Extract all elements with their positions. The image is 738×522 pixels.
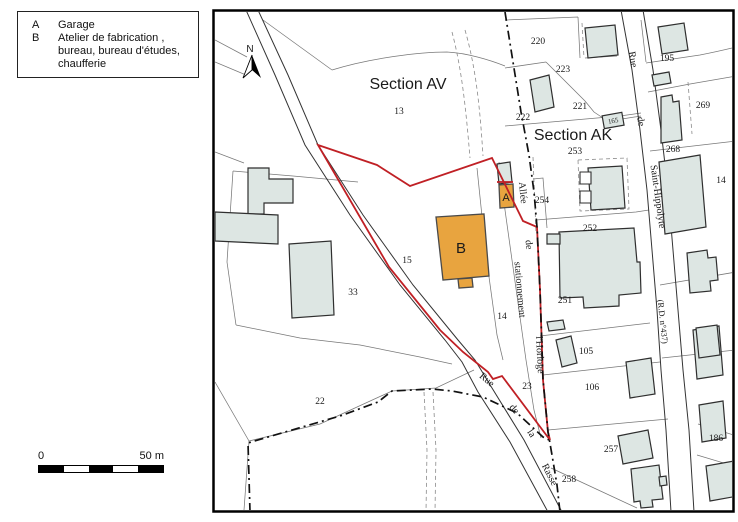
building-parcel-268-tall <box>661 95 682 143</box>
svg-text:106: 106 <box>585 383 600 393</box>
building-parcel-33 <box>289 241 334 318</box>
svg-text:14: 14 <box>497 312 507 322</box>
svg-text:253: 253 <box>568 147 583 157</box>
svg-text:22: 22 <box>315 397 325 407</box>
building-parcel-105 <box>556 336 577 367</box>
svg-text:186: 186 <box>709 434 724 444</box>
svg-text:220: 220 <box>531 37 546 47</box>
svg-text:15: 15 <box>402 256 412 266</box>
svg-text:23: 23 <box>522 382 532 392</box>
svg-text:13: 13 <box>394 107 404 117</box>
building-parcel-253-monument <box>588 166 625 210</box>
building-parcel-220 <box>585 25 618 58</box>
cadastral-map-page: A Garage B Atelier de fabrication , bure… <box>0 0 738 522</box>
section-ak-label: Section AK <box>534 127 613 144</box>
svg-text:la: la <box>524 427 537 440</box>
building-b-label: B <box>456 240 466 257</box>
svg-text:105: 105 <box>579 347 594 357</box>
svg-text:269: 269 <box>696 101 711 111</box>
svg-text:14: 14 <box>716 176 726 186</box>
svg-text:de: de <box>523 239 535 250</box>
svg-text:223: 223 <box>556 65 571 75</box>
svg-text:221: 221 <box>573 102 588 112</box>
building-parcel-223 <box>530 75 554 112</box>
svg-text:268: 268 <box>666 145 681 155</box>
svg-text:254: 254 <box>535 196 550 206</box>
svg-text:195: 195 <box>660 54 675 64</box>
svg-text:N: N <box>246 44 253 55</box>
building-l-shape <box>248 168 293 214</box>
svg-text:Rue: Rue <box>477 371 497 390</box>
building-a-label: A <box>502 192 510 204</box>
svg-text:stationnement: stationnement <box>512 261 528 318</box>
svg-text:Allée: Allée <box>516 181 529 204</box>
svg-text:33: 33 <box>348 288 358 298</box>
building-parcel-257 <box>618 430 653 464</box>
svg-text:l'Horloge: l'Horloge <box>533 336 546 374</box>
svg-text:257: 257 <box>604 445 619 455</box>
svg-text:de: de <box>634 116 647 128</box>
svg-text:Rue: Rue <box>626 51 640 69</box>
building-parcel-106 <box>626 358 655 398</box>
north-arrow-icon: N <box>243 44 261 78</box>
building-parcel-195 <box>658 23 688 54</box>
svg-text:251: 251 <box>558 296 573 306</box>
building-long-strip <box>215 212 278 244</box>
svg-text:252: 252 <box>583 224 598 234</box>
building-small-195 <box>652 72 671 86</box>
map-canvas: N Section AV Section AK 13 15 33 14 22 2… <box>0 0 738 522</box>
svg-text:258: 258 <box>562 475 577 485</box>
section-av-label: Section AV <box>369 76 446 93</box>
svg-text:222: 222 <box>516 113 531 123</box>
